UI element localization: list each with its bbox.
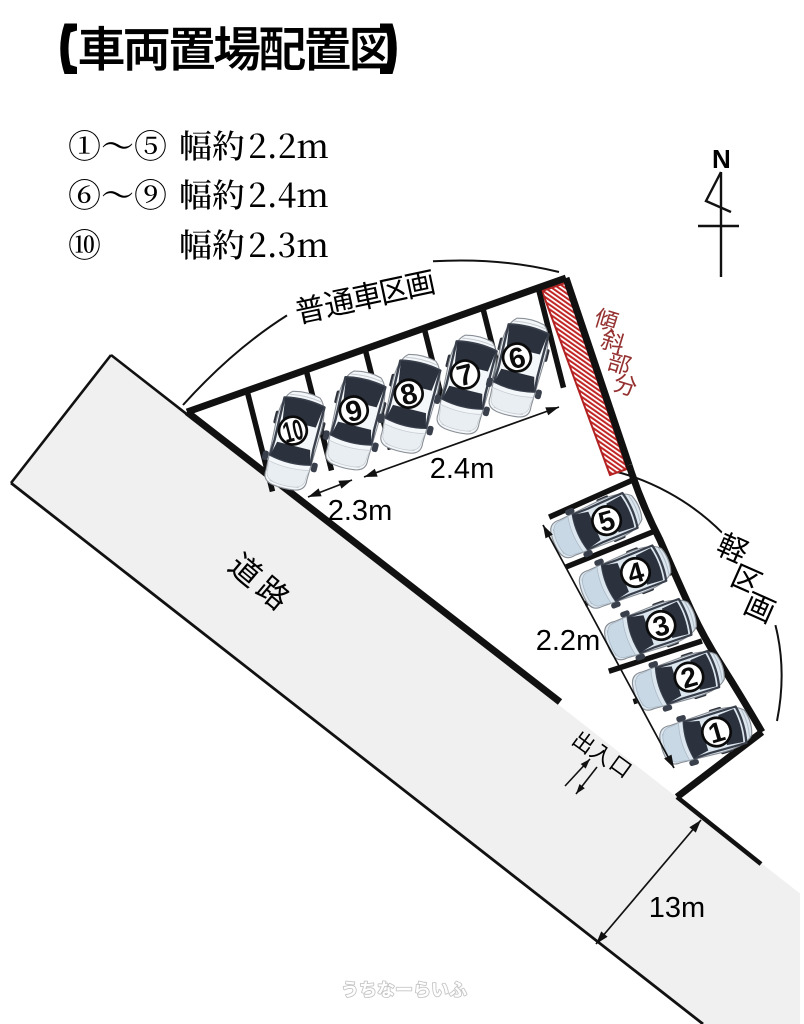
svg-text:N: N (712, 144, 731, 174)
svg-text:2.2m: 2.2m (536, 625, 600, 657)
svg-text:13m: 13m (649, 892, 705, 924)
svg-text:2.3m: 2.3m (328, 495, 392, 527)
svg-text:2.4m: 2.4m (430, 453, 494, 485)
